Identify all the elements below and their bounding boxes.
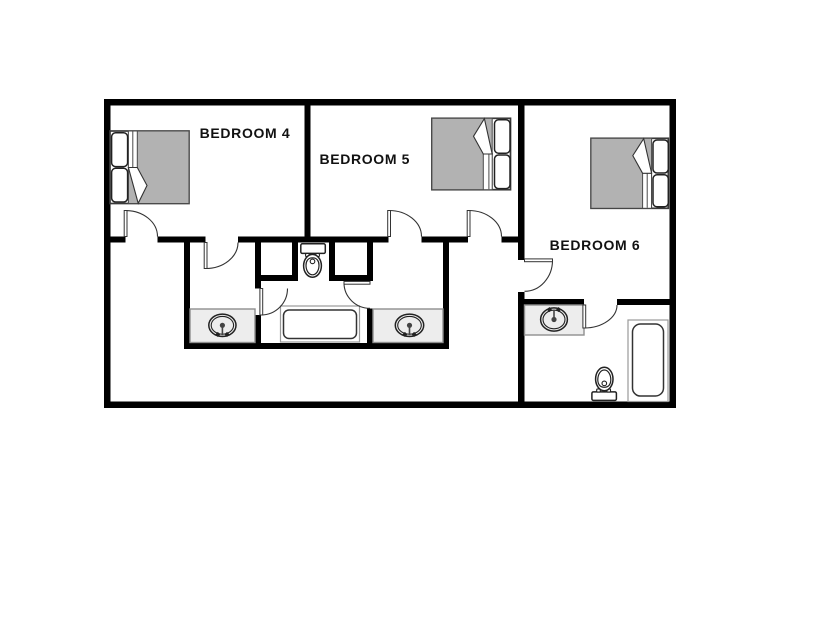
svg-text:BEDROOM 4: BEDROOM 4 [200,125,291,141]
svg-text:BEDROOM 6: BEDROOM 6 [550,237,641,253]
svg-text:BEDROOM 5: BEDROOM 5 [319,151,410,167]
